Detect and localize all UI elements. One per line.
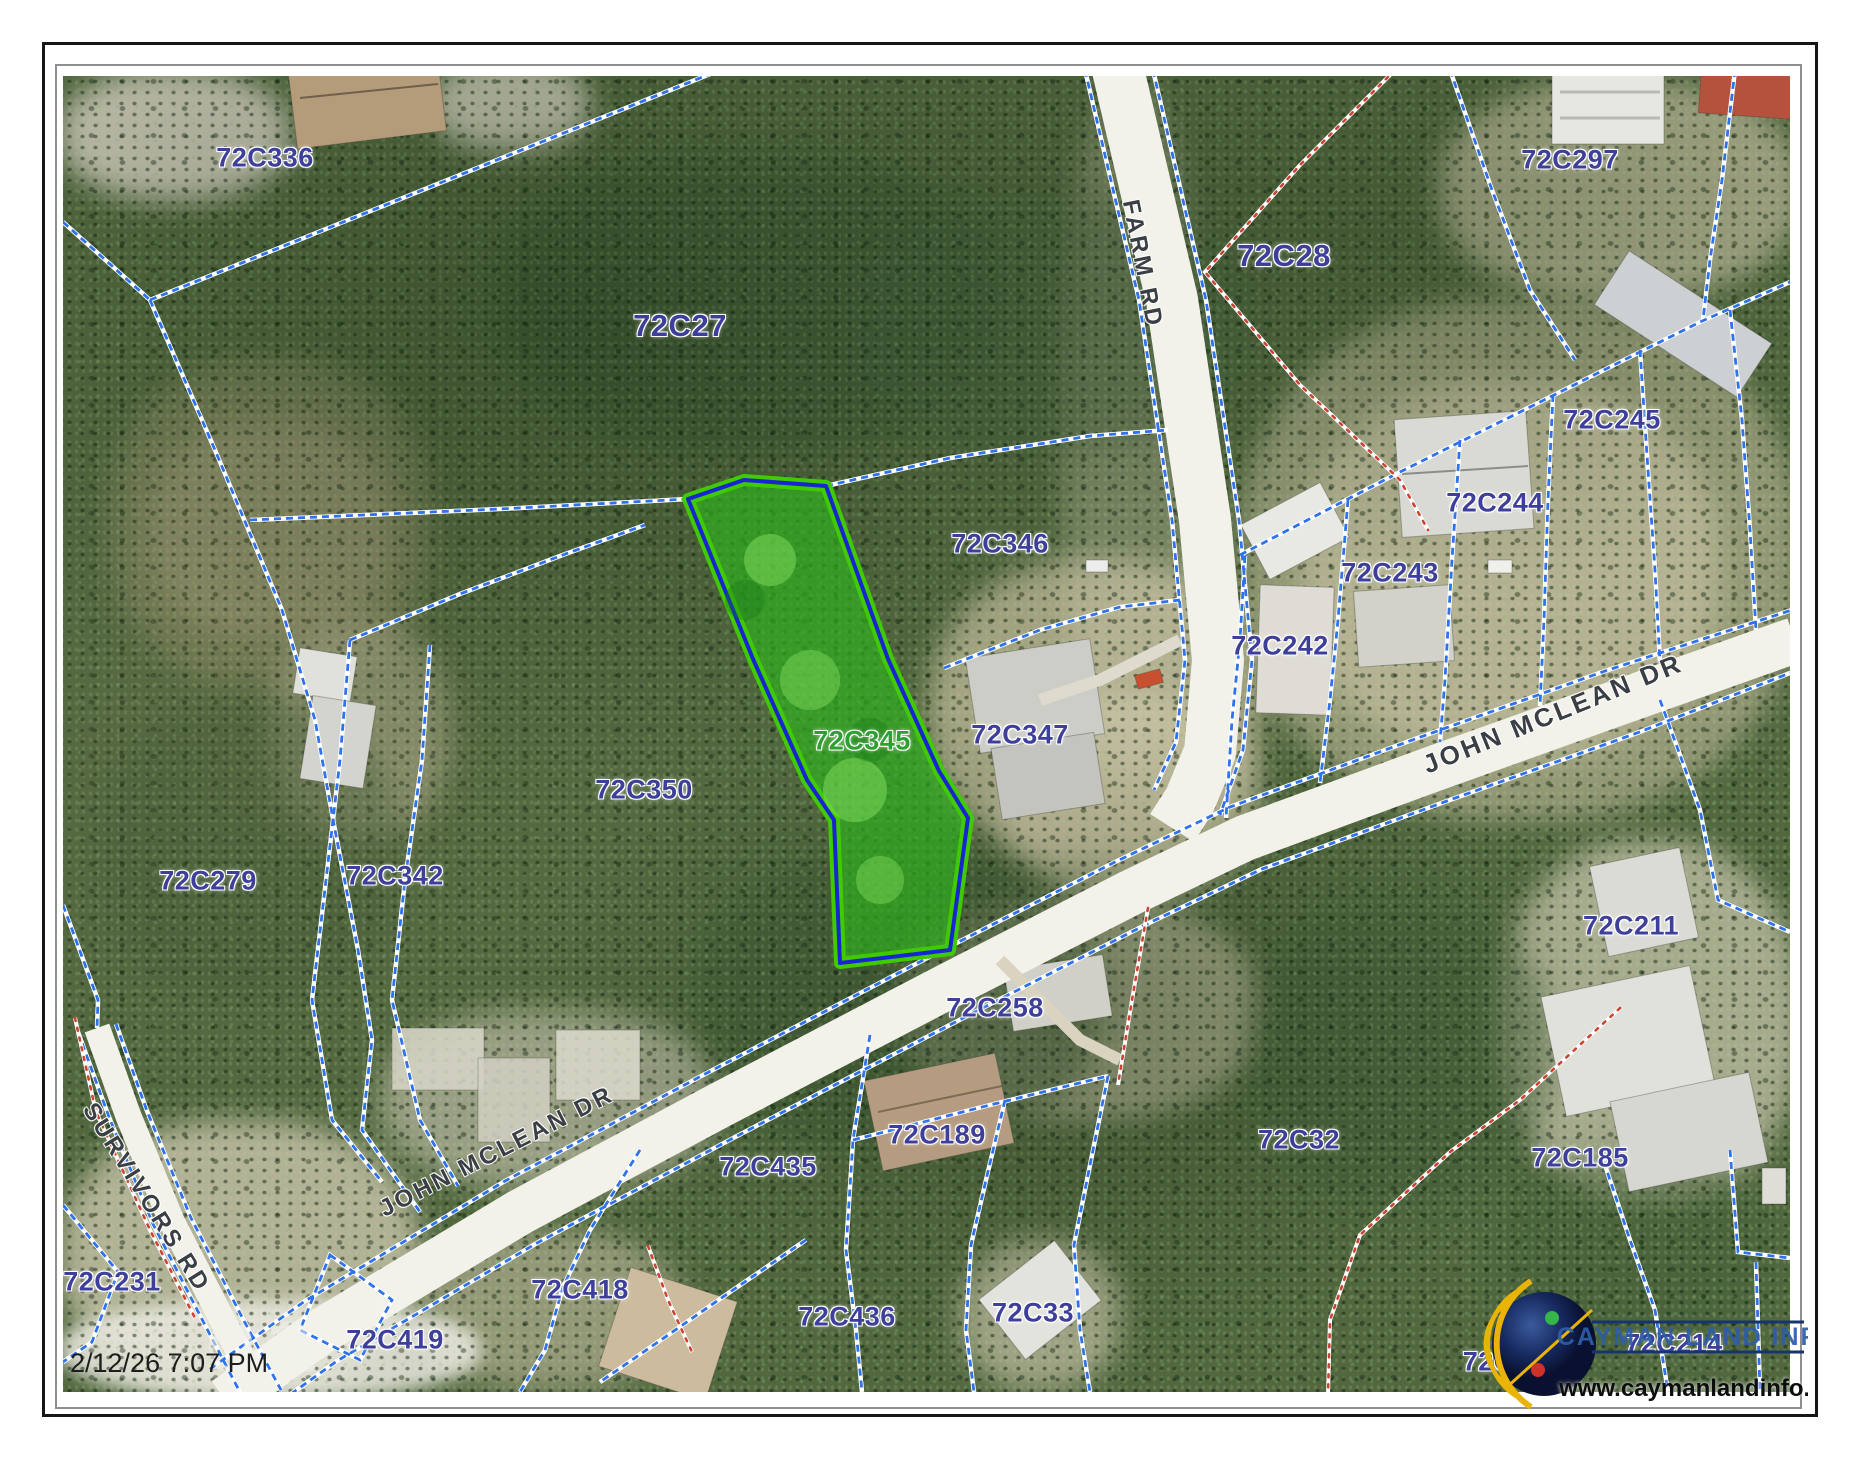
parcel-label-72c189: 72C189 xyxy=(888,1120,986,1151)
parcel-label-72c347: 72C347 xyxy=(971,720,1069,751)
parcel-label-72c346: 72C346 xyxy=(951,529,1049,560)
parcel-label-72c345-highlighted: 72C345 xyxy=(813,726,911,757)
parcel-label-72c33: 72C33 xyxy=(992,1298,1074,1329)
parcel-label-72c279: 72C279 xyxy=(159,866,257,897)
logo-url[interactable]: www.caymanlandinfo.ky xyxy=(1558,1375,1808,1402)
red-dot-icon xyxy=(1531,1363,1545,1377)
parcel-label-72c242: 72C242 xyxy=(1231,631,1329,662)
parcel-label-72c243: 72C243 xyxy=(1341,558,1439,589)
page: { "map": { "parcel_labels": [ {"text":"7… xyxy=(0,0,1860,1458)
farm-rd-road xyxy=(1118,76,1218,828)
parcel-label-72c28: 72C28 xyxy=(1237,238,1331,274)
parcel-label-72c245: 72C245 xyxy=(1563,405,1661,436)
caymanlandinfo-logo[interactable]: CAYMAN LAND INFO www.caymanlandinfo.ky xyxy=(1474,1278,1808,1420)
parcel-label-72c231: 72C231 xyxy=(63,1267,161,1298)
parcel-label-72c244: 72C244 xyxy=(1446,488,1544,519)
logo-title: CAYMAN LAND INFO xyxy=(1557,1323,1808,1351)
parcel-label-72c258: 72C258 xyxy=(946,993,1044,1024)
parcel-label-72c32: 72C32 xyxy=(1258,1125,1340,1156)
parcel-label-72c350: 72C350 xyxy=(595,775,693,806)
highlighted-parcel-72c345[interactable] xyxy=(688,480,968,963)
parcel-label-72c336: 72C336 xyxy=(216,143,314,174)
parcel-label-72c185: 72C185 xyxy=(1531,1143,1629,1174)
parcel-label-72c211: 72C211 xyxy=(1583,911,1679,942)
parcel-label-72c342: 72C342 xyxy=(346,861,444,892)
parcel-label-72c435: 72C435 xyxy=(719,1152,817,1183)
parcel-label-72c27: 72C27 xyxy=(633,308,727,344)
parcel-label-72c436: 72C436 xyxy=(798,1302,896,1333)
parcel-label-72c419: 72C419 xyxy=(346,1325,444,1356)
timestamp: 2/12/26 7:07 PM xyxy=(70,1348,268,1379)
parcel-label-72c297: 72C297 xyxy=(1521,145,1619,176)
parcel-label-72c418: 72C418 xyxy=(531,1275,629,1306)
